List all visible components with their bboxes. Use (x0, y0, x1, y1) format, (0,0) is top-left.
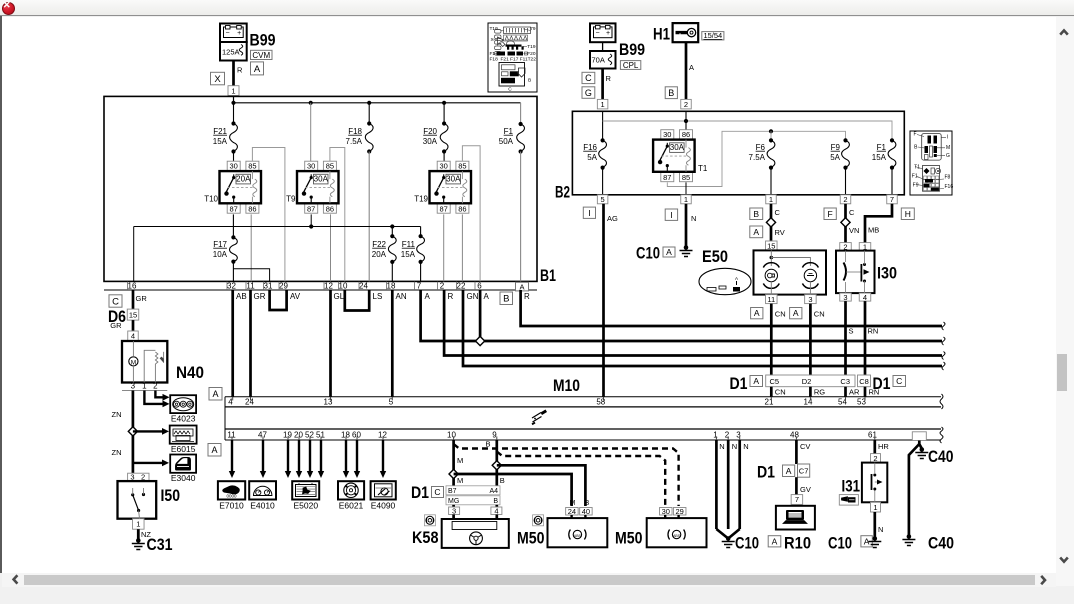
svg-text:N40: N40 (176, 363, 204, 382)
svg-text:CVM: CVM (252, 51, 270, 60)
svg-text:A: A (793, 308, 799, 318)
svg-text:E4023: E4023 (171, 414, 196, 424)
svg-text:30: 30 (440, 162, 448, 171)
svg-text:C10: C10 (636, 244, 660, 263)
svg-text:F1: F1 (490, 51, 496, 57)
svg-text:A: A (754, 308, 760, 318)
svg-text:M: M (946, 145, 950, 151)
svg-text:R: R (448, 292, 454, 301)
svg-text:N: N (743, 442, 748, 451)
svg-text:D1: D1 (757, 463, 775, 482)
svg-text:24: 24 (359, 281, 368, 290)
svg-text:3: 3 (843, 293, 847, 302)
svg-text:RN: RN (868, 327, 879, 336)
svg-text:T1: T1 (914, 165, 920, 171)
svg-text:24: 24 (568, 507, 576, 516)
svg-text:F18: F18 (348, 127, 362, 136)
svg-text:21: 21 (765, 397, 774, 406)
svg-text:A4: A4 (489, 488, 498, 495)
svg-text:125A: 125A (222, 48, 240, 57)
svg-text:A: A (666, 247, 672, 257)
svg-text:6: 6 (477, 281, 482, 290)
svg-text:15: 15 (129, 310, 137, 319)
svg-text:GR: GR (136, 294, 148, 303)
svg-text:F22: F22 (372, 240, 386, 249)
svg-text:F1.: F1. (912, 174, 919, 180)
svg-text:A: A (212, 389, 218, 399)
svg-text:48: 48 (790, 430, 799, 439)
svg-text:G: G (946, 153, 950, 159)
svg-text:32: 32 (227, 281, 236, 290)
svg-text:30A: 30A (423, 137, 438, 146)
svg-text:E6015: E6015 (171, 444, 196, 454)
svg-text:C10: C10 (735, 534, 759, 553)
svg-text:E7010: E7010 (219, 500, 244, 510)
svg-text:N: N (691, 214, 696, 223)
svg-text:58: 58 (596, 397, 605, 406)
svg-text:VN: VN (849, 226, 859, 235)
svg-text:B: B (914, 145, 918, 151)
svg-text:1: 1 (136, 520, 140, 529)
svg-text:7: 7 (417, 281, 422, 290)
svg-text:11: 11 (246, 281, 255, 290)
svg-text:F6: F6 (756, 143, 766, 152)
svg-text:61: 61 (868, 430, 877, 439)
svg-text:79: 79 (530, 26, 536, 32)
svg-text:0000: 0000 (226, 494, 237, 499)
svg-text:MG: MG (448, 498, 459, 505)
svg-text:7: 7 (795, 495, 799, 504)
svg-text:F21: F21 (213, 127, 227, 136)
svg-text:B: B (668, 88, 674, 98)
svg-text:HR: HR (878, 442, 889, 451)
svg-text:AN: AN (396, 292, 407, 301)
svg-text:1: 1 (769, 195, 773, 204)
svg-text:N: N (719, 442, 724, 451)
svg-text:C5: C5 (770, 377, 780, 386)
svg-text:30A: 30A (670, 143, 685, 152)
svg-text:RG: RG (814, 388, 825, 397)
svg-text:B7: B7 (448, 488, 457, 495)
svg-text:2: 2 (843, 195, 847, 204)
svg-text:F16: F16 (583, 143, 597, 152)
svg-text:I: I (588, 208, 590, 218)
svg-text:I31: I31 (842, 477, 861, 496)
svg-text:30: 30 (230, 162, 238, 171)
svg-text:87: 87 (307, 204, 315, 213)
svg-text:24: 24 (245, 397, 254, 406)
svg-text:2: 2 (153, 382, 158, 391)
svg-text:CN: CN (775, 388, 786, 397)
svg-text:GR: GR (110, 321, 122, 330)
svg-text:F11: F11 (402, 240, 416, 249)
svg-text:ZN: ZN (112, 448, 122, 457)
svg-text:F9: F9 (831, 143, 841, 152)
svg-text:B: B (503, 294, 509, 305)
svg-text:3: 3 (736, 430, 741, 439)
svg-text:B1: B1 (540, 266, 556, 285)
svg-text:N: N (732, 442, 737, 451)
svg-text:A: A (484, 292, 490, 301)
svg-text:ABS: ABS (574, 534, 582, 538)
svg-text:14: 14 (804, 397, 813, 406)
svg-text:2: 2 (440, 281, 445, 290)
svg-text:1: 1 (231, 86, 235, 95)
svg-text:4: 4 (131, 332, 135, 341)
svg-text:E6021: E6021 (339, 500, 364, 510)
svg-text:D2: D2 (802, 377, 812, 386)
svg-text:T10: T10 (204, 194, 218, 203)
svg-text:R: R (524, 292, 530, 301)
svg-text:T1: T1 (698, 164, 708, 173)
svg-text:CN: CN (775, 310, 786, 319)
svg-text:2: 2 (725, 430, 730, 439)
svg-text:13: 13 (324, 397, 333, 406)
svg-text:C: C (849, 208, 855, 217)
svg-text:LS: LS (373, 292, 383, 301)
svg-text:−: − (225, 30, 229, 37)
svg-text:30A: 30A (446, 175, 461, 184)
svg-text:G: G (585, 88, 592, 98)
svg-text:H: H (905, 209, 911, 219)
svg-text:29: 29 (279, 281, 288, 290)
svg-text:C: C (434, 487, 440, 497)
svg-text:B: B (753, 209, 759, 219)
svg-text:AG: AG (607, 214, 618, 223)
svg-text:A: A (753, 227, 759, 237)
svg-text:X: X (491, 37, 495, 43)
svg-text:86: 86 (326, 204, 334, 213)
svg-text:15: 15 (767, 241, 775, 250)
svg-text:F18: F18 (490, 56, 499, 62)
svg-text:5: 5 (601, 195, 605, 204)
svg-text:+: + (606, 30, 610, 37)
svg-text:F: F (828, 209, 833, 219)
svg-text:GN: GN (467, 292, 479, 301)
svg-text:M: M (457, 456, 463, 465)
svg-text:50A: 50A (499, 137, 514, 146)
svg-text:AV: AV (290, 292, 301, 301)
svg-text:20A: 20A (372, 250, 387, 259)
svg-text:S: S (849, 327, 854, 336)
svg-text:D1: D1 (411, 483, 429, 502)
svg-text:4: 4 (863, 293, 867, 302)
svg-text:15A: 15A (213, 137, 228, 146)
svg-text:D1: D1 (730, 374, 748, 393)
svg-text:H1: H1 (653, 25, 670, 44)
svg-text:54: 54 (838, 397, 847, 406)
svg-text:GR: GR (254, 292, 266, 301)
svg-text:F1: F1 (504, 127, 514, 136)
svg-text:16: 16 (128, 281, 137, 290)
svg-text:CPL: CPL (623, 61, 639, 70)
svg-text:AB: AB (236, 292, 247, 301)
svg-text:M10: M10 (553, 376, 580, 395)
svg-text:A: A (425, 292, 431, 301)
svg-text:F21 F17 F11T22: F21 F17 F11T22 (501, 56, 537, 62)
svg-text:10: 10 (339, 281, 348, 290)
svg-text:MB: MB (868, 226, 879, 235)
svg-text:15A: 15A (401, 250, 416, 259)
svg-text:7.5A: 7.5A (749, 153, 766, 162)
svg-text:87: 87 (230, 204, 238, 213)
svg-text:B99: B99 (619, 40, 645, 59)
svg-text:C40: C40 (928, 534, 954, 553)
svg-text:E50: E50 (702, 247, 728, 266)
svg-text:A: A (211, 445, 217, 455)
svg-text:30: 30 (662, 507, 670, 516)
svg-text:T19: T19 (527, 44, 536, 50)
svg-text:30: 30 (307, 162, 315, 171)
svg-text:C: C (508, 87, 512, 93)
svg-text:M: M (131, 359, 136, 366)
svg-text:29: 29 (676, 507, 684, 516)
svg-text:C10: C10 (828, 534, 852, 553)
svg-text:15A: 15A (872, 153, 887, 162)
svg-text:M50: M50 (517, 528, 545, 547)
svg-text:1: 1 (713, 430, 718, 439)
svg-text:CV: CV (800, 442, 810, 451)
svg-text:85: 85 (458, 162, 466, 171)
svg-text:85: 85 (326, 162, 334, 171)
svg-text:87: 87 (663, 173, 671, 182)
svg-text:A: A (254, 64, 261, 75)
svg-text:R: R (237, 66, 243, 75)
svg-text:I: I (670, 210, 672, 220)
svg-text:B: B (500, 476, 505, 485)
svg-text:+: + (237, 30, 241, 37)
svg-text:40: 40 (582, 507, 590, 516)
svg-text:1: 1 (601, 100, 605, 109)
svg-text:A: A (786, 466, 792, 476)
svg-text:15/54: 15/54 (703, 31, 722, 40)
svg-text:12: 12 (324, 281, 333, 290)
svg-text:C: C (775, 208, 781, 217)
svg-text:I: I (947, 135, 948, 141)
svg-text:M: M (457, 476, 463, 485)
svg-text:B: B (493, 498, 498, 505)
svg-text:X: X (214, 74, 221, 85)
svg-text:I30: I30 (877, 264, 897, 283)
svg-text:18: 18 (387, 281, 396, 290)
svg-text:RN: RN (869, 388, 880, 397)
svg-text:K58: K58 (412, 528, 439, 547)
svg-text:CN: CN (814, 310, 825, 319)
svg-text:T19: T19 (414, 194, 428, 203)
svg-text:F20: F20 (527, 51, 536, 57)
svg-text:RV: RV (775, 228, 785, 237)
svg-text:C7: C7 (799, 466, 809, 475)
svg-text:E5020: E5020 (294, 500, 319, 510)
svg-text:E3040: E3040 (171, 473, 196, 483)
svg-text:7.5A: 7.5A (346, 137, 363, 146)
svg-text:B: B (528, 78, 531, 84)
svg-text:M50: M50 (615, 528, 643, 547)
svg-text:GL: GL (334, 292, 345, 301)
svg-text:I50: I50 (161, 487, 181, 505)
svg-text:A: A (753, 376, 759, 386)
svg-text:R10: R10 (784, 534, 811, 553)
svg-text:B99: B99 (250, 31, 276, 50)
svg-text:C40: C40 (928, 447, 954, 466)
svg-text:3: 3 (452, 506, 456, 515)
svg-text:1: 1 (684, 195, 688, 204)
svg-text:30: 30 (663, 130, 671, 139)
svg-text:AR: AR (849, 388, 860, 397)
svg-text:B2: B2 (555, 183, 570, 202)
svg-text:C31: C31 (147, 535, 173, 554)
svg-text:5A: 5A (587, 153, 597, 162)
svg-text:3: 3 (131, 382, 136, 391)
svg-text:F20: F20 (423, 127, 437, 136)
svg-text:20A: 20A (236, 175, 251, 184)
svg-text:F9: F9 (913, 183, 919, 189)
svg-text:N: N (878, 525, 883, 534)
svg-text:31: 31 (264, 281, 273, 290)
svg-text:ABS: ABS (673, 534, 681, 538)
svg-text:R: R (606, 74, 612, 83)
svg-text:F17: F17 (213, 240, 227, 249)
svg-text:C: C (585, 73, 592, 83)
svg-text:11: 11 (767, 295, 775, 304)
svg-text:70A: 70A (592, 56, 605, 65)
svg-text:T9: T9 (286, 194, 296, 203)
svg-text:2: 2 (684, 100, 688, 109)
svg-text:F8: F8 (945, 175, 951, 181)
svg-text:ZN: ZN (112, 410, 122, 419)
svg-text:F: F (913, 132, 916, 138)
svg-text:87: 87 (440, 204, 448, 213)
svg-text:5: 5 (389, 397, 394, 406)
svg-text:86: 86 (682, 130, 690, 139)
svg-text:1: 1 (873, 503, 877, 512)
svg-text:A: A (689, 63, 694, 72)
svg-text:5A: 5A (830, 153, 840, 162)
svg-text:10A: 10A (213, 250, 228, 259)
svg-text:C: C (896, 376, 902, 386)
svg-text:30A: 30A (314, 175, 329, 184)
svg-text:86: 86 (248, 204, 256, 213)
svg-text:−: − (595, 30, 599, 37)
svg-text:85: 85 (682, 173, 690, 182)
svg-text:4: 4 (494, 506, 498, 515)
svg-text:B: B (485, 439, 490, 448)
svg-text:C8: C8 (859, 377, 869, 386)
svg-text:C3: C3 (840, 377, 850, 386)
svg-text:22: 22 (457, 281, 466, 290)
svg-text:GV: GV (800, 485, 811, 494)
svg-text:E4090: E4090 (371, 500, 396, 510)
svg-text:86: 86 (458, 204, 466, 213)
svg-text:E4010: E4010 (250, 500, 275, 510)
svg-text:3: 3 (808, 295, 812, 304)
svg-text:1: 1 (142, 382, 147, 391)
svg-text:A: A (519, 282, 524, 291)
svg-text:A: A (772, 536, 778, 546)
svg-text:F1: F1 (877, 143, 887, 152)
svg-text:F16: F16 (945, 184, 954, 190)
svg-text:2: 2 (873, 454, 877, 463)
svg-text:85: 85 (248, 162, 256, 171)
svg-text:C: C (112, 296, 119, 307)
svg-text:7: 7 (890, 195, 894, 204)
svg-text:10: 10 (447, 430, 456, 439)
svg-text:A: A (735, 276, 738, 281)
